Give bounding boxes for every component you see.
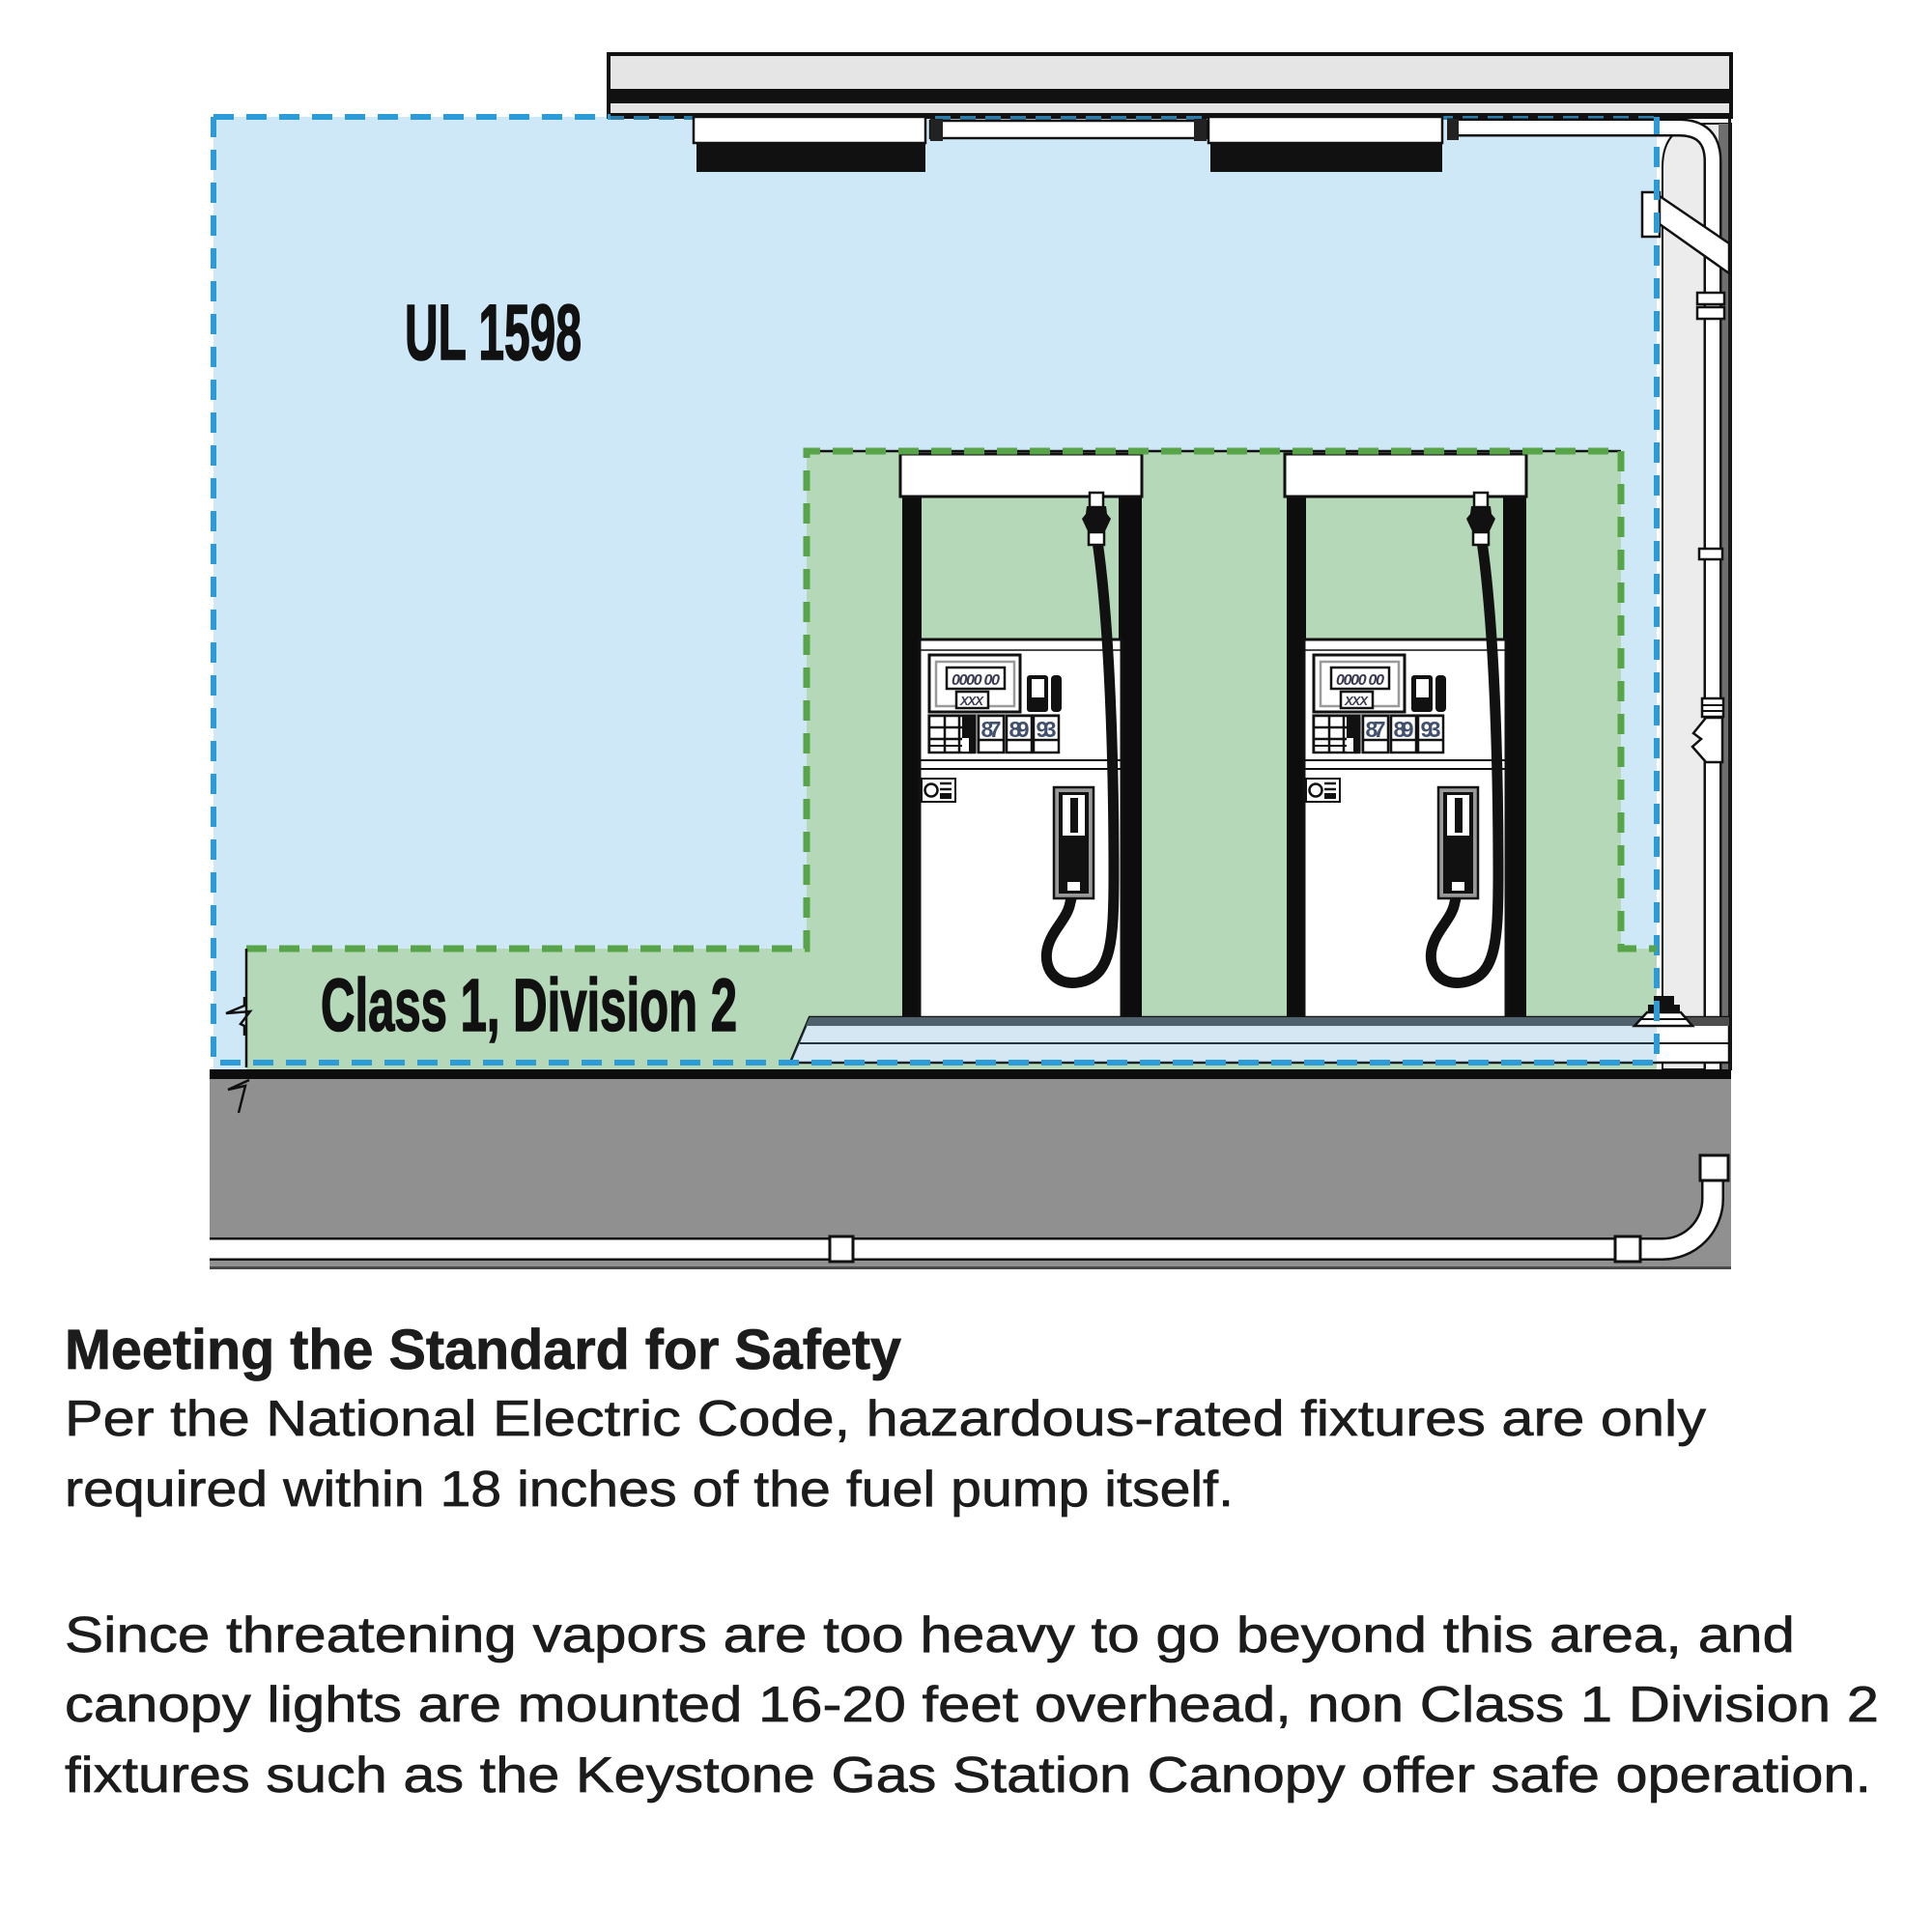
svg-text:UL 1598: UL 1598 (405, 289, 582, 377)
svg-text:Meeting the Standard for Safet: Meeting the Standard for Safety (65, 1319, 901, 1381)
svg-text:Class 1, Division 2: Class 1, Division 2 (321, 964, 737, 1047)
svg-text:fixtures such as the Keystone: fixtures such as the Keystone Gas Statio… (65, 1747, 1871, 1804)
svg-text:required within 18 inches of t: required within 18 inches of the fuel pu… (65, 1462, 1234, 1518)
svg-text:canopy lights are mounted 16-2: canopy lights are mounted 16-20 feet ove… (65, 1677, 1879, 1733)
svg-text:Per the National Electric Code: Per the National Electric Code, hazardou… (65, 1391, 1706, 1447)
svg-text:Since threatening vapors are t: Since threatening vapors are too heavy t… (65, 1607, 1795, 1663)
